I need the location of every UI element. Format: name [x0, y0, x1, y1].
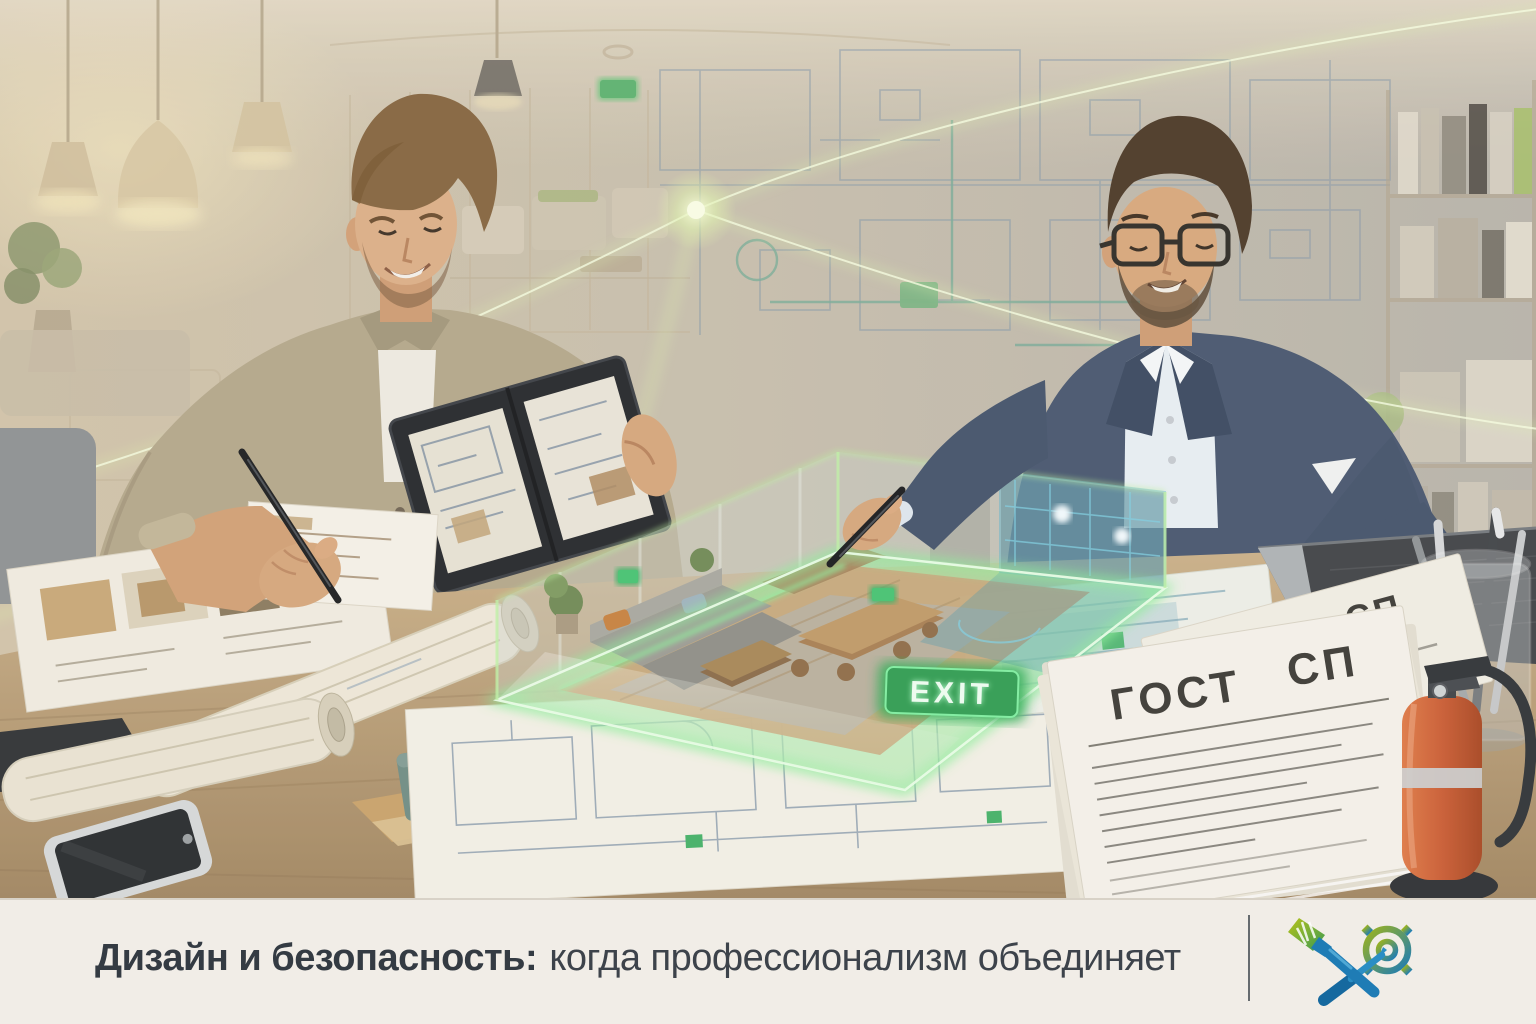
caption-title-bold: Дизайн и безопасность:	[95, 937, 537, 979]
caption-bar: Дизайн и безопасность:когда профессионал…	[0, 898, 1536, 1024]
tone-overlay	[0, 0, 1536, 898]
poster: EXIT EXIT	[0, 0, 1536, 1024]
paintbrush-icon	[1288, 918, 1374, 992]
caption-divider	[1248, 915, 1250, 1001]
illustration-scene: EXIT EXIT	[0, 0, 1536, 898]
caption-title: Дизайн и безопасность:когда профессионал…	[95, 937, 1222, 980]
caption-title-regular: когда профессионализм объединяет	[549, 937, 1180, 979]
brand-logo	[1276, 902, 1440, 1014]
